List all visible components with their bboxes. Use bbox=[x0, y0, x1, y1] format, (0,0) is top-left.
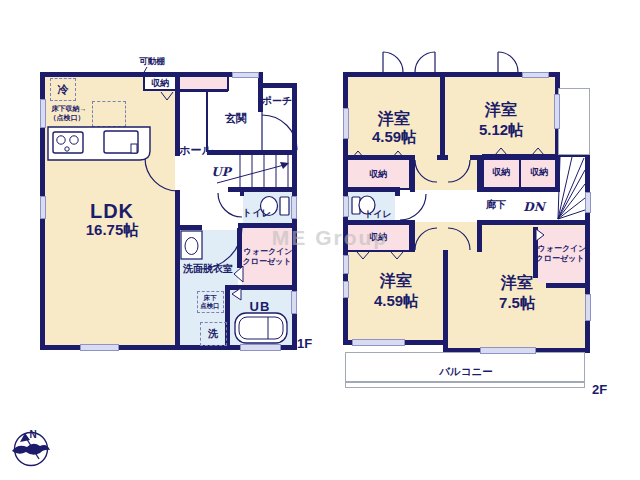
hall-label: ホール bbox=[179, 145, 213, 156]
floor-label-2f: 2F bbox=[592, 383, 607, 396]
fridge-label: 冷 bbox=[58, 84, 69, 95]
entrance-label: 玄関 bbox=[225, 113, 247, 124]
washroom-label: 洗面脱衣室 bbox=[183, 264, 233, 274]
stairs-dn-2f bbox=[558, 157, 585, 219]
wic-label-2f-line1: ウォークイン bbox=[538, 245, 587, 253]
vanity-icon bbox=[181, 231, 202, 259]
door-arcs-2f bbox=[383, 52, 518, 250]
bedroom-sw-size: 4.59帖 bbox=[374, 293, 418, 308]
toilet-label-1f: トイレ bbox=[242, 208, 271, 218]
movable-shelf-label: 可動棚 bbox=[139, 57, 165, 66]
storage-label-2f-ne-b: 収納 bbox=[530, 168, 548, 177]
storage-label-2f-nw: 収納 bbox=[369, 170, 387, 179]
bedroom-ne-name: 洋室 bbox=[485, 102, 517, 118]
storage-label-2f-ne-a: 収納 bbox=[492, 168, 510, 177]
porch-label: ポーチ bbox=[262, 96, 292, 106]
bedroom-nw-size: 4.59帖 bbox=[372, 129, 416, 144]
compass-north-label: N bbox=[29, 430, 36, 440]
faucet-icon bbox=[131, 144, 137, 153]
floor-label-1f: 1F bbox=[297, 337, 312, 350]
bedroom-se-name: 洋室 bbox=[501, 275, 533, 291]
toilet-label-2f: トイレ bbox=[364, 210, 392, 219]
hatch-label-line1: 床下 bbox=[204, 295, 217, 302]
ldk-name: LDK bbox=[90, 201, 134, 221]
bath-label: UB bbox=[250, 300, 271, 313]
storage-label-1f: 収納 bbox=[151, 79, 169, 88]
wic-label-2f-line2: クローゼット bbox=[536, 255, 585, 263]
bedroom-nw-name: 洋室 bbox=[378, 111, 410, 127]
balcony-label: バルコニー bbox=[439, 366, 492, 377]
hatch-label-line2: 点検口 bbox=[200, 303, 220, 310]
bedroom-sw-name: 洋室 bbox=[380, 273, 412, 289]
laundry-label: 洗 bbox=[208, 329, 218, 339]
stairs-dn-label: DN bbox=[523, 201, 544, 213]
stairs-up-label: UP bbox=[211, 166, 231, 178]
underfloor-note-line1: 床下収納→ bbox=[52, 105, 87, 112]
corridor-label: 廊下 bbox=[486, 200, 506, 210]
bathtub-icon bbox=[235, 313, 287, 343]
ldk-size: 16.75帖 bbox=[86, 222, 139, 237]
kitchen-counter bbox=[48, 127, 150, 160]
bedroom-se-size: 7.5帖 bbox=[499, 295, 535, 310]
watermark: ME Group bbox=[272, 226, 388, 250]
wic-label-1f-line2: クローゼット bbox=[243, 258, 292, 266]
underfloor-note-line2: （点検口） bbox=[50, 114, 85, 121]
bedroom-ne-size: 5.12帖 bbox=[479, 122, 523, 137]
